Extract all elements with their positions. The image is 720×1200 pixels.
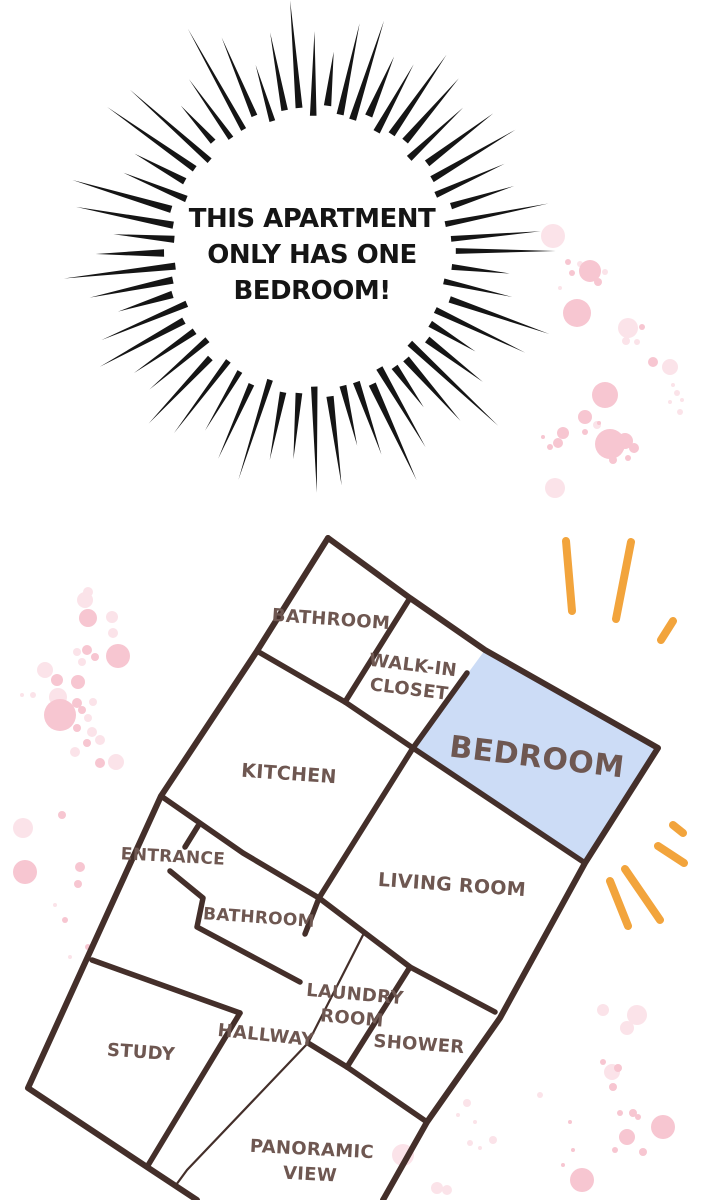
pink-blob <box>51 674 63 686</box>
pink-blob <box>84 714 92 722</box>
pink-blob <box>79 609 97 627</box>
wall-shower-bottom <box>347 1067 427 1122</box>
pink-blob <box>561 1163 565 1167</box>
pink-blob <box>662 359 678 375</box>
pink-blob <box>668 400 672 404</box>
pink-blob <box>674 390 680 396</box>
pink-blob <box>612 1147 618 1153</box>
speech-burst: THIS APARTMENT ONLY HAS ONE BEDROOM! <box>64 0 556 492</box>
pink-blob <box>74 880 82 888</box>
room-label-hallway: HALLWAY <box>217 1020 316 1051</box>
wall-study-top <box>92 960 240 1013</box>
pink-blob <box>619 1129 635 1145</box>
pink-blob <box>571 1148 575 1152</box>
pink-blob <box>565 259 571 265</box>
pink-blob <box>68 955 72 959</box>
pink-blob <box>639 1148 647 1156</box>
pink-blob <box>618 318 638 338</box>
pink-blob <box>635 1114 641 1120</box>
pink-blob <box>478 1146 482 1150</box>
pink-blob <box>553 438 563 448</box>
pink-blob <box>106 611 118 623</box>
pink-blob <box>37 662 53 678</box>
pink-blob <box>541 224 565 248</box>
pink-blob <box>541 435 545 439</box>
wall-laundry-bottom <box>308 1043 347 1067</box>
pink-blob <box>489 1136 497 1144</box>
pink-blob <box>13 818 33 838</box>
pink-blob <box>557 427 569 439</box>
room-label-shower: SHOWER <box>373 1031 465 1058</box>
pink-blob <box>537 1092 543 1098</box>
burst-line-2: ONLY HAS ONE <box>207 240 417 270</box>
pink-blob <box>62 917 68 923</box>
pink-blob <box>597 421 601 425</box>
pink-blob <box>609 1083 617 1091</box>
pink-blob <box>75 862 85 872</box>
pink-blob <box>58 811 66 819</box>
pink-blob <box>108 628 118 638</box>
pink-blob <box>20 693 24 697</box>
room-label-panoramic-line1: PANORAMIC <box>249 1136 374 1163</box>
pink-blob <box>89 698 97 706</box>
pink-blob <box>70 747 80 757</box>
outer-wall-right <box>328 538 658 1200</box>
pink-blob <box>677 409 683 415</box>
pink-blob <box>680 398 684 402</box>
pink-blob <box>547 444 553 450</box>
pink-blob <box>600 1059 606 1065</box>
pink-blob <box>625 455 631 461</box>
panel-canvas: THIS APARTMENT ONLY HAS ONE BEDROOM! BAT… <box>0 0 720 1200</box>
pink-blob <box>634 339 640 345</box>
room-label-laundry-line2: ROOM <box>319 1005 384 1031</box>
pink-blob <box>83 587 93 597</box>
room-label-study: STUDY <box>106 1040 176 1066</box>
pink-blob <box>431 1182 443 1194</box>
pink-blob <box>558 286 562 290</box>
pink-blob <box>73 648 81 656</box>
pink-blob <box>578 410 592 424</box>
room-label-panoramic-line2: VIEW <box>282 1163 337 1187</box>
pink-blob <box>597 1004 609 1016</box>
pink-blob <box>582 429 588 435</box>
pink-blob <box>622 337 630 345</box>
pink-blob <box>95 758 105 768</box>
pink-blob <box>456 1113 460 1117</box>
pink-blob <box>467 1140 473 1146</box>
pink-blob <box>602 269 608 275</box>
pink-blob <box>594 278 602 286</box>
pink-blob <box>563 299 591 327</box>
pink-blob <box>71 675 85 689</box>
pink-blob <box>568 1120 572 1124</box>
pink-blob <box>442 1185 452 1195</box>
pink-blob <box>108 754 124 770</box>
burst-line-1: THIS APARTMENT <box>189 204 436 234</box>
pink-blob <box>592 382 618 408</box>
pink-blob <box>78 658 86 666</box>
pink-blob <box>617 1110 623 1116</box>
pink-blob <box>13 860 37 884</box>
pink-blob <box>95 735 105 745</box>
pink-blob <box>545 478 565 498</box>
outer-wall-left <box>28 538 328 1200</box>
webtoon-panel: THIS APARTMENT ONLY HAS ONE BEDROOM! BAT… <box>0 0 720 1200</box>
pink-blob <box>73 724 81 732</box>
pink-blob <box>671 383 675 387</box>
pink-blob <box>44 699 76 731</box>
emphasis-strokes-top-icon <box>566 541 673 640</box>
pink-blob <box>53 903 57 907</box>
pink-blob <box>569 270 575 276</box>
pink-blob <box>83 739 91 747</box>
room-label-bathroom-top: BATHROOM <box>271 605 391 634</box>
room-label-bathroom-lower: BATHROOM <box>202 904 315 932</box>
room-label-kitchen: KITCHEN <box>240 760 337 789</box>
floor-plan-diagram: BATHROOM WALK-IN CLOSET BEDROOM KITCHEN … <box>28 538 658 1200</box>
pink-blob <box>30 692 36 698</box>
pink-blob <box>91 653 99 661</box>
pink-blob <box>629 443 639 453</box>
pink-blob <box>639 324 645 330</box>
pink-blob <box>82 645 92 655</box>
room-label-entrance: ENTRANCE <box>120 844 225 869</box>
pink-blob <box>570 1168 594 1192</box>
pink-blob <box>614 1064 622 1072</box>
pink-blob <box>87 727 97 737</box>
pink-blob <box>620 1021 634 1035</box>
pink-blob <box>106 644 130 668</box>
wall-entrance-stub <box>185 826 198 847</box>
pink-blob <box>648 357 658 367</box>
pink-blob <box>473 1120 477 1124</box>
burst-line-3: BEDROOM! <box>233 276 390 306</box>
pink-blob <box>463 1099 471 1107</box>
pink-blob <box>78 706 86 714</box>
room-label-living-room: LIVING ROOM <box>377 869 526 901</box>
emphasis-strokes-right-icon <box>610 825 684 926</box>
pink-blob <box>651 1115 675 1139</box>
pink-blob <box>609 456 617 464</box>
